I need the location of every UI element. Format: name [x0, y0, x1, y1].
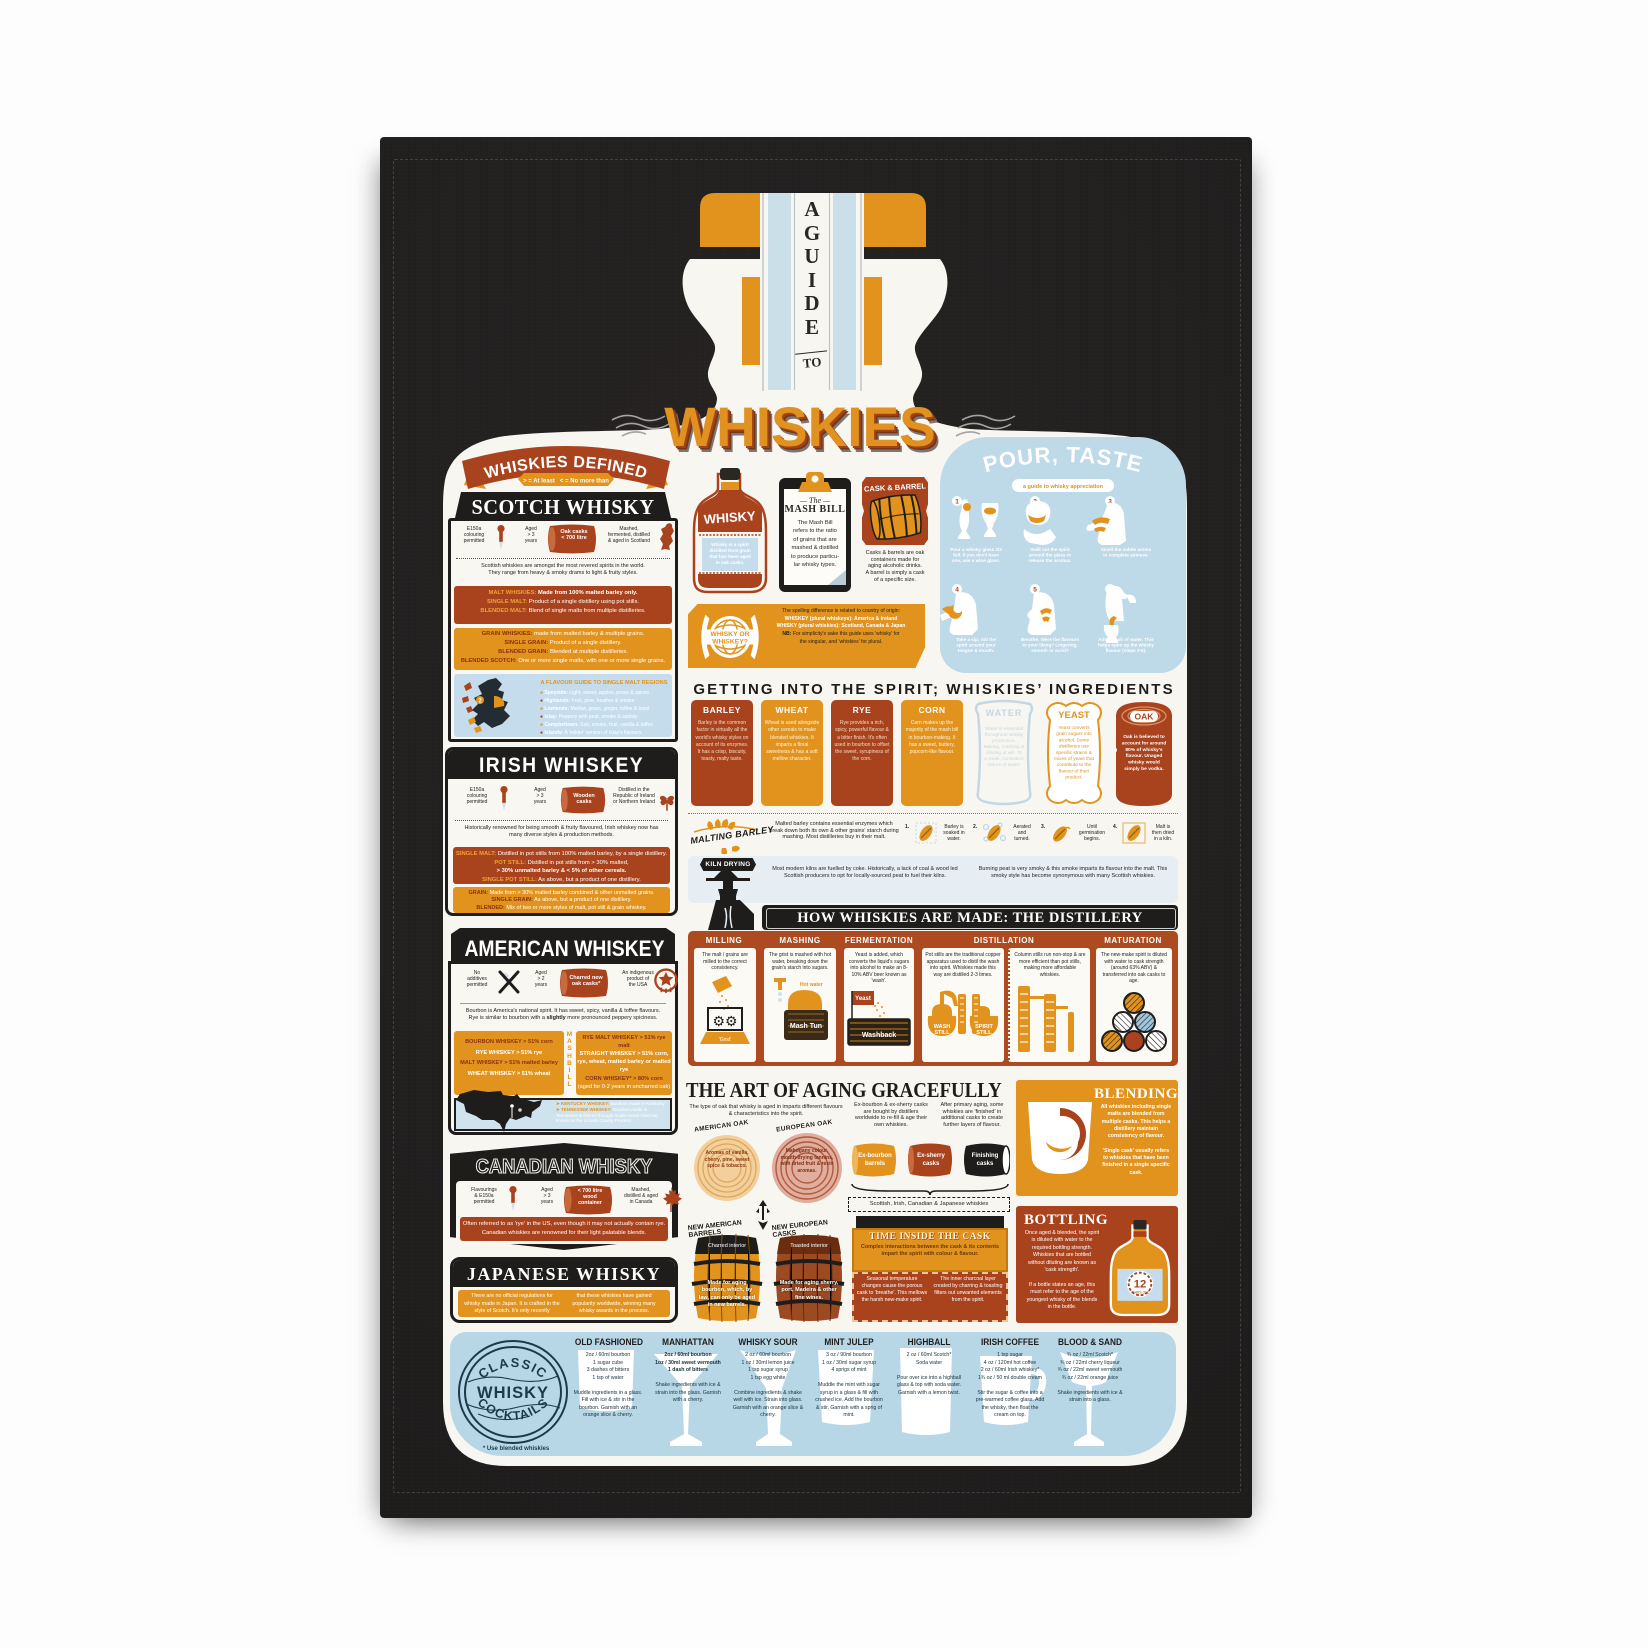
svg-text:distilled from grain: distilled from grain [709, 548, 751, 553]
svg-text:Whisky is a spirit: Whisky is a spirit [711, 542, 749, 547]
svg-text:barrels: barrels [865, 1161, 886, 1167]
svg-text:POUR, TASTE: POUR, TASTE [981, 442, 1146, 477]
svg-text:a guide to whisky appreciation: a guide to whisky appreciation [1023, 484, 1104, 490]
svg-text:Washback: Washback [862, 1032, 896, 1039]
svg-text:'Grist': 'Grist' [719, 1037, 732, 1043]
svg-text:WHISKEY?: WHISKEY? [712, 639, 748, 646]
svg-text:Mash Tun: Mash Tun [790, 1023, 822, 1030]
svg-text:Charred interior: Charred interior [708, 1243, 746, 1249]
svg-text:that has been aged: that has been aged [709, 554, 751, 559]
svg-text:5: 5 [1033, 587, 1037, 594]
svg-text:YEAST: YEAST [1058, 710, 1090, 721]
svg-text:12: 12 [1134, 1279, 1147, 1291]
svg-text:WATER: WATER [986, 708, 1023, 718]
svg-text:Add a dash of water. Thishelps: Add a dash of water. Thishelps open up t… [1098, 637, 1154, 653]
svg-text:YEARS OLD: YEARS OLD [1131, 1290, 1150, 1294]
svg-text:Toasted interior: Toasted interior [790, 1243, 828, 1249]
svg-text:> = At least < = No more tha: > = At least < = No more than [523, 479, 609, 485]
svg-text:Yeast: Yeast [855, 996, 871, 1002]
svg-text:Swill out the spiritaround the: Swill out the spiritaround the glass tor… [1029, 547, 1072, 563]
svg-text:Water is essentialthroughout w: Water is essentialthroughout whiskyprodu… [984, 726, 1026, 768]
svg-text:casks: casks [977, 1161, 994, 1167]
svg-text:Finishing: Finishing [972, 1153, 999, 1159]
svg-text:Ex-sherry: Ex-sherry [917, 1153, 945, 1159]
svg-text:* Use blended whiskies: * Use blended whiskies [483, 1446, 550, 1452]
svg-text:Breathe. Were the flavoursto y: Breathe. Were the flavoursto your liking… [1021, 637, 1080, 653]
svg-text:Take a sip; roll thespirit aro: Take a sip; roll thespirit around yourto… [956, 637, 996, 653]
svg-text:OAK: OAK [1135, 712, 1155, 722]
svg-text:Smell the subtle aromain compl: Smell the subtle aromain complete airine… [1101, 547, 1152, 558]
svg-text:4: 4 [955, 587, 959, 594]
svg-text:STILL: STILL [934, 1030, 950, 1036]
svg-text:Pour a whisky glass 2/3full. I: Pour a whisky glass 2/3full. If you don'… [950, 547, 1002, 563]
svg-text:Yeast convertsgrain sugars int: Yeast convertsgrain sugars intoalcohol. … [1054, 725, 1095, 781]
svg-text:⚙⚙: ⚙⚙ [712, 1013, 737, 1029]
svg-text:in oak casks.: in oak casks. [716, 560, 745, 565]
svg-text:WHISKY OR: WHISKY OR [710, 631, 749, 638]
svg-text:Ex-bourbon: Ex-bourbon [858, 1153, 892, 1159]
svg-text:STILL: STILL [976, 1030, 992, 1036]
svg-text:1: 1 [955, 499, 959, 506]
svg-text:Hot water: Hot water [800, 982, 823, 988]
svg-text:casks: casks [923, 1161, 940, 1167]
